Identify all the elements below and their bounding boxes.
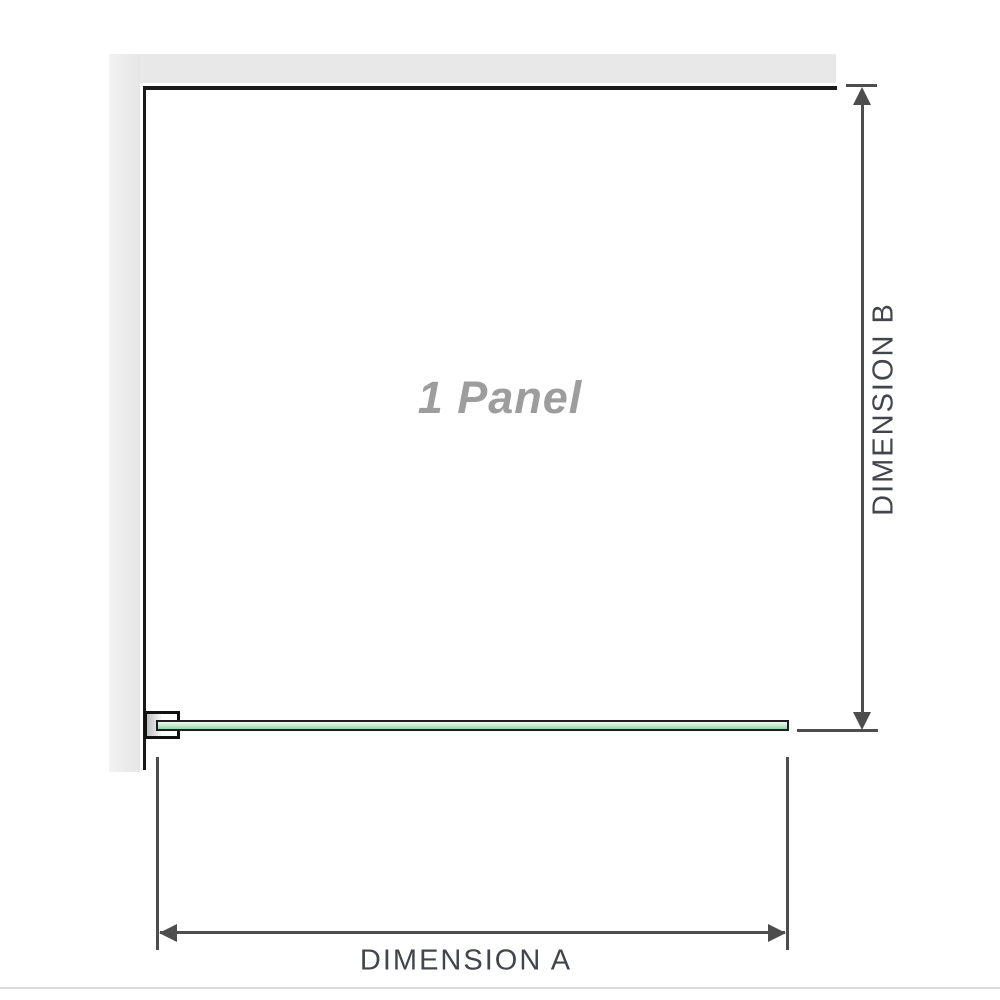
dimension-a-label: DIMENSION A <box>360 945 572 978</box>
arrow-left-icon <box>159 924 177 942</box>
dim-a-extension-left <box>156 757 159 950</box>
dim-a-line <box>160 931 785 934</box>
arrow-down-icon <box>853 712 871 730</box>
dimension-b-label: DIMENSION B <box>868 302 901 516</box>
wall-edge-top-line <box>143 86 837 90</box>
wall-edge-left-line <box>143 86 146 770</box>
dim-a-extension-right <box>786 757 789 950</box>
dim-b-bottom-cap <box>797 729 878 732</box>
wall-top <box>109 54 836 83</box>
arrow-right-icon <box>768 924 786 942</box>
panel-label: 1 Panel <box>350 370 650 426</box>
arrow-up-icon <box>853 87 871 105</box>
page-baseline-divider <box>0 987 1000 989</box>
wall-left <box>109 54 140 772</box>
glass-panel-bar <box>156 720 789 731</box>
diagram-canvas: 1 Panel DIMENSION B DIMENSION A <box>0 0 1000 1000</box>
dim-b-line <box>861 95 864 720</box>
